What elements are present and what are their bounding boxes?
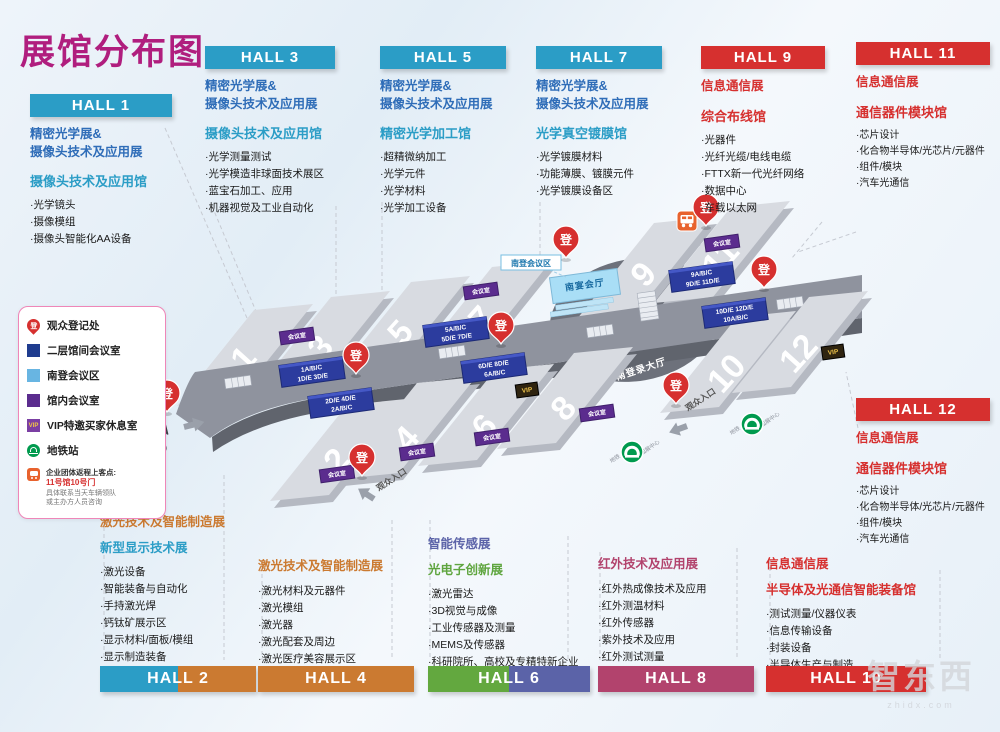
hall-number: 5 xyxy=(380,313,421,352)
hall5-shows: 精密光学展&摄像头技术及应用展 xyxy=(380,78,528,113)
exhibit-item: ·摄像头智能化AA设备 xyxy=(30,231,172,248)
exhibit-item: ·红外传感器 xyxy=(598,615,754,632)
vip-badge-icon: VIP xyxy=(27,419,40,432)
hall5-header: HALL 5 xyxy=(380,46,506,69)
svg-text:观众入口: 观众入口 xyxy=(683,386,717,413)
central-corridor xyxy=(176,275,862,452)
exhibit-item: ·光纤光缆/电线电缆 xyxy=(701,149,833,166)
svg-text:会议室: 会议室 xyxy=(713,238,732,248)
visitor-entrance-east: 观众入口 xyxy=(667,386,718,439)
svg-text:5A/B/C: 5A/B/C xyxy=(445,324,467,334)
hall3-shows: 精密光学展&摄像头技术及应用展 xyxy=(205,78,357,113)
exhibit-item: ·光学元件 xyxy=(380,166,528,183)
panel-hall7: HALL 7 精密光学展&摄像头技术及应用展 光学真空镀膜馆 ·光学镀膜材料 ·… xyxy=(536,46,684,200)
legend-label: 二层馆间会议室 xyxy=(47,343,121,358)
legend-label: 地铁站 xyxy=(47,443,79,458)
hall8-show: 红外技术及应用展 xyxy=(598,556,754,574)
unit-clusters: 1A/B/C1D/E 3D/E 2D/E 4D/E2A/B/C 5A/B/C5D… xyxy=(279,262,768,419)
hall11-items: ·芯片设计 ·化合物半导体/光芯片/元器件 ·组件/模块 ·汽车光通信 xyxy=(856,128,996,193)
svg-text:会议室: 会议室 xyxy=(288,331,307,341)
exhibit-item: ·激光材料及元器件 xyxy=(258,583,414,600)
exhibit-item: ·摄像模组 xyxy=(30,214,172,231)
hall8-header: HALL 8 xyxy=(598,666,754,692)
exhibit-item: ·FTTX新一代光纤网络 xyxy=(701,166,833,183)
exhibit-item: ·组件/模块 xyxy=(856,160,996,176)
exhibit-item: ·3D视觉与成像 xyxy=(428,603,590,620)
hall1-items: ·光学镜头 ·摄像模组 ·摄像头智能化AA设备 xyxy=(30,197,172,248)
hall10-show: 信息通信展 xyxy=(766,556,938,574)
hall11-venue: 通信器件模块馆 xyxy=(856,102,996,121)
hall10-header: HALL 10 xyxy=(766,666,926,692)
svg-text:会议室: 会议室 xyxy=(328,469,347,479)
exhibit-item: ·车载以太网 xyxy=(701,200,833,217)
svg-text:观众入口: 观众入口 xyxy=(374,466,408,493)
bus-note-line: 企业团体返程上客点: xyxy=(46,468,116,478)
panel-hall2: 激光技术及智能制造展 新型显示技术展 ·激光设备 ·智能装备与自动化 ·手持激光… xyxy=(100,514,256,692)
exhibit-item: ·芯片设计 xyxy=(856,128,996,144)
svg-text:会议室: 会议室 xyxy=(408,447,427,457)
panel-hall1: HALL 1 精密光学展&摄像头技术及应用展 摄像头技术及应用馆 ·光学镜头 ·… xyxy=(30,94,172,248)
exhibit-item: ·MEMS及传感器 xyxy=(428,637,590,654)
legend-item-hall-meeting: 馆内会议室 xyxy=(27,393,157,408)
legend-label: 南登会议区 xyxy=(47,368,100,383)
hall11-header: HALL 11 xyxy=(856,42,990,65)
hall1-header: HALL 1 xyxy=(30,94,172,117)
panel-hall6: 智能传感展 光电子创新展 ·激光雷达 ·3D视觉与成像 ·工业传感器及测量 ·M… xyxy=(428,536,590,692)
exhibit-item: ·机器视觉及工业自动化 xyxy=(205,200,357,217)
legend-item-south-meeting: 南登会议区 xyxy=(27,368,157,383)
hall-number: 4 xyxy=(386,419,427,459)
svg-text:登: 登 xyxy=(757,262,771,277)
exhibit-item: ·芯片设计 xyxy=(856,484,996,500)
svg-text:国展中心: 国展中心 xyxy=(639,437,662,456)
hall12-items: ·芯片设计 ·化合物半导体/光芯片/元器件 ·组件/模块 ·汽车光通信 xyxy=(856,484,996,549)
legend-bus-note: 企业团体返程上客点: 11号馆10号门 具体联系当天车辆领队 或主办方人员咨询 xyxy=(27,468,157,508)
registration-pins: 登 登 登 登 登 登 登 登 xyxy=(154,194,777,480)
exhibit-item: ·测试测量/仪器仪表 xyxy=(766,606,938,623)
exhibit-item: ·化合物半导体/光芯片/元器件 xyxy=(856,500,996,516)
lightblue-square-icon xyxy=(27,369,40,382)
svg-text:9D/E 11D/E: 9D/E 11D/E xyxy=(686,277,721,289)
hall3-venue: 摄像头技术及应用馆 xyxy=(205,123,357,142)
hall12-header: HALL 12 xyxy=(856,398,990,421)
exhibit-item: ·红外热成像技术及应用 xyxy=(598,581,754,598)
exhibit-item: ·激光配套及周边 xyxy=(258,634,414,651)
hall7-header: HALL 7 xyxy=(536,46,662,69)
panel-hall10: 信息通信展 半导体及光通信智能装备馆 ·测试测量/仪器仪表 ·信息传输设备 ·封… xyxy=(766,556,938,692)
exhibit-item: ·光学镀膜设备区 xyxy=(536,183,684,200)
hall1-venue: 摄像头技术及应用馆 xyxy=(30,171,172,190)
hall7-items: ·光学镀膜材料 ·功能薄膜、镀膜元件 ·光学镀膜设备区 xyxy=(536,149,684,200)
exhibit-item: ·钙钛矿展示区 xyxy=(100,615,256,632)
panel-hall3: HALL 3 精密光学展&摄像头技术及应用展 摄像头技术及应用馆 ·光学测量测试… xyxy=(205,46,357,217)
hall3-items: ·光学测量测试 ·光学模造非球面技术展区 ·蓝宝石加工、应用 ·机器视觉及工业自… xyxy=(205,149,357,217)
svg-text:10A/B/C: 10A/B/C xyxy=(723,314,749,324)
registration-hall-label: 南登录大厅 xyxy=(614,355,668,383)
hall4-items: ·激光材料及元器件 ·激光模组 ·激光器 ·激光配套及周边 ·激光医疗美容展示区 xyxy=(258,583,414,668)
exhibit-item: ·超精微纳加工 xyxy=(380,149,528,166)
svg-text:南登会议区: 南登会议区 xyxy=(511,258,551,268)
exhibit-item: ·蓝宝石加工、应用 xyxy=(205,183,357,200)
watermark-url: zhidx.com xyxy=(846,700,996,710)
exhibit-item: ·功能薄膜、镀膜元件 xyxy=(536,166,684,183)
svg-text:会议室: 会议室 xyxy=(588,408,607,418)
hall-number: 2 xyxy=(316,441,357,480)
hall-number: 1 xyxy=(223,339,264,378)
legend-item-metro: 地铁站 xyxy=(27,443,157,458)
bus-note-line: 或主办方人员咨询 xyxy=(46,498,116,507)
vip-rooms: VIP VIP xyxy=(515,344,845,398)
banquet-hall: 南宴会厅 xyxy=(546,268,623,317)
svg-text:10D/E 12D/E: 10D/E 12D/E xyxy=(715,304,754,316)
meeting-rooms: 会议室 会议室 会议室 会议室 会议室 会议室 会议室 xyxy=(279,234,739,483)
bus-badge-icon xyxy=(27,468,40,481)
exhibit-item: ·激光器 xyxy=(258,617,414,634)
svg-text:地铁: 地铁 xyxy=(608,452,622,465)
hall2-show2: 新型显示技术展 xyxy=(100,540,256,558)
exhibit-item: ·红外测试测量 xyxy=(598,649,754,666)
hall12-show: 信息通信展 xyxy=(856,430,996,448)
hall9-items: ·光器件 ·光纤光缆/电线电缆 ·FTTX新一代光纤网络 ·数据中心 ·车载以太… xyxy=(701,132,833,217)
hall-number: 7 xyxy=(461,299,502,338)
exhibit-item: ·光学模造非球面技术展区 xyxy=(205,166,357,183)
exhibit-item: ·信息传输设备 xyxy=(766,623,938,640)
hall6-header: HALL 6 xyxy=(428,666,590,692)
exhibit-item: ·激光模组 xyxy=(258,600,414,617)
hall-number: 6 xyxy=(464,407,505,446)
exhibit-item: ·激光医疗美容展示区 xyxy=(258,651,414,668)
panel-hall8: 红外技术及应用展 ·红外热成像技术及应用 ·红外测温材料 ·红外传感器 ·紫外技… xyxy=(598,556,754,692)
svg-text:6A/B/C: 6A/B/C xyxy=(484,369,506,379)
legend-label: 观众登记处 xyxy=(47,318,100,333)
exhibit-item: ·化合物半导体/光芯片/元器件 xyxy=(856,144,996,160)
panel-hall4: 激光技术及智能制造展 ·激光材料及元器件 ·激光模组 ·激光器 ·激光配套及周边… xyxy=(258,558,414,692)
svg-text:登: 登 xyxy=(669,378,683,393)
escalators xyxy=(224,291,803,389)
svg-text:2A/B/C: 2A/B/C xyxy=(331,404,353,414)
registration-pin-icon: 登 xyxy=(24,316,42,334)
hall4-header: HALL 4 xyxy=(258,666,414,692)
purple-square-icon xyxy=(27,394,40,407)
svg-text:9A/B/C: 9A/B/C xyxy=(691,269,713,279)
hall5-venue: 精密光学加工馆 xyxy=(380,123,528,142)
metro-stations: 地铁国展中心 地铁国展中心 xyxy=(608,409,782,464)
exhibit-item: ·数据中心 xyxy=(701,183,833,200)
exhibit-item: ·光学加工设备 xyxy=(380,200,528,217)
svg-text:1A/B/C: 1A/B/C xyxy=(301,364,323,374)
exhibit-item: ·光学镀膜材料 xyxy=(536,149,684,166)
map-legend: 登 观众登记处 二层馆间会议室 南登会议区 馆内会议室 VIP VIP特邀买家休… xyxy=(18,306,166,519)
exhibit-item: ·光器件 xyxy=(701,132,833,149)
hall-number: 12 xyxy=(772,327,826,381)
svg-text:1D/E 3D/E: 1D/E 3D/E xyxy=(297,372,329,383)
hall6-show1: 智能传感展 xyxy=(428,536,590,554)
hall9-show: 信息通信展 xyxy=(701,78,833,96)
hall7-venue: 光学真空镀膜馆 xyxy=(536,123,684,142)
svg-text:登: 登 xyxy=(355,450,369,465)
svg-text:会议室: 会议室 xyxy=(483,432,502,442)
svg-text:6D/E 8D/E: 6D/E 8D/E xyxy=(478,359,510,370)
svg-text:国展中心: 国展中心 xyxy=(759,409,782,428)
panel-hall9: HALL 9 信息通信展 综合布线馆 ·光器件 ·光纤光缆/电线电缆 ·FTTX… xyxy=(701,46,833,217)
exhibit-item: ·封装设备 xyxy=(766,640,938,657)
hall8-items: ·红外热成像技术及应用 ·红外测温材料 ·红外传感器 ·紫外技术及应用 ·红外测… xyxy=(598,581,754,666)
hall6-show2: 光电子创新展 xyxy=(428,562,590,580)
hall-slabs-back: 1 3 5 7 9 11 xyxy=(177,201,794,413)
hall1-shows: 精密光学展&摄像头技术及应用展 xyxy=(30,126,172,161)
bus-icon xyxy=(677,211,697,231)
panel-hall5: HALL 5 精密光学展&摄像头技术及应用展 精密光学加工馆 ·超精微纳加工 ·… xyxy=(380,46,528,217)
legend-item-floor2-meeting: 二层馆间会议室 xyxy=(27,343,157,358)
exhibit-item: ·光学镜头 xyxy=(30,197,172,214)
hall-number: 8 xyxy=(543,389,584,428)
exhibit-item: ·工业传感器及测量 xyxy=(428,620,590,637)
hall-number: 11 xyxy=(695,233,747,285)
svg-text:登: 登 xyxy=(559,232,573,247)
exhibit-item: ·汽车光通信 xyxy=(856,176,996,192)
hall9-venue: 综合布线馆 xyxy=(701,106,833,125)
navy-square-icon xyxy=(27,344,40,357)
legend-label: VIP特邀买家休息室 xyxy=(47,418,137,433)
hall6-items: ·激光雷达 ·3D视觉与成像 ·工业传感器及测量 ·MEMS及传感器 ·科研院所… xyxy=(428,586,590,671)
exhibit-item: ·光学测量测试 xyxy=(205,149,357,166)
panel-hall12: HALL 12 信息通信展 通信器件模块馆 ·芯片设计 ·化合物半导体/光芯片/… xyxy=(856,398,996,548)
hall3-header: HALL 3 xyxy=(205,46,335,69)
svg-text:地铁: 地铁 xyxy=(728,424,742,437)
hall11-show: 信息通信展 xyxy=(856,74,996,92)
hall9-header: HALL 9 xyxy=(701,46,825,69)
exhibit-item: ·组件/模块 xyxy=(856,516,996,532)
svg-text:登: 登 xyxy=(494,318,508,333)
hall5-items: ·超精微纳加工 ·光学元件 ·光学材料 ·光学加工设备 xyxy=(380,149,528,217)
exhibit-item: ·红外测温材料 xyxy=(598,598,754,615)
hall-number: 10 xyxy=(700,347,754,401)
exhibit-item: ·汽车光通信 xyxy=(856,532,996,548)
exhibit-item: ·紫外技术及应用 xyxy=(598,632,754,649)
hall10-venue: 半导体及光通信智能装备馆 xyxy=(766,582,938,600)
exhibit-item: ·显示制造装备 xyxy=(100,649,256,666)
page-title: 展馆分布图 xyxy=(20,24,205,75)
visitor-entrance-south: 观众入口 xyxy=(354,466,408,505)
svg-text:会议室: 会议室 xyxy=(472,286,491,296)
hall7-shows: 精密光学展&摄像头技术及应用展 xyxy=(536,78,684,113)
exhibit-item: ·智能装备与自动化 xyxy=(100,581,256,598)
registration-plaza xyxy=(540,245,731,395)
south-meeting-area: 南登会议区 xyxy=(501,255,566,277)
hall4-show: 激光技术及智能制造展 xyxy=(258,558,414,576)
svg-text:VIP: VIP xyxy=(827,348,839,356)
exhibit-item: ·显示材料/面板/模组 xyxy=(100,632,256,649)
bus-note-gate: 11号馆10号门 xyxy=(46,478,116,489)
legend-label: 馆内会议室 xyxy=(47,393,100,408)
exhibit-item: ·手持激光焊 xyxy=(100,598,256,615)
hall-slabs-front: 2 4 6 8 10 12 xyxy=(270,291,872,508)
svg-text:登: 登 xyxy=(349,348,363,363)
legend-item-registration: 登 观众登记处 xyxy=(27,318,157,333)
svg-text:5D/E 7D/E: 5D/E 7D/E xyxy=(441,332,473,343)
hall2-header: HALL 2 xyxy=(100,666,256,692)
exhibit-item: ·光学材料 xyxy=(380,183,528,200)
svg-text:2D/E 4D/E: 2D/E 4D/E xyxy=(325,394,357,405)
exhibit-item: ·激光设备 xyxy=(100,564,256,581)
legend-item-vip: VIP VIP特邀买家休息室 xyxy=(27,418,157,433)
hall10-items: ·测试测量/仪器仪表 ·信息传输设备 ·封装设备 ·半导体生产与制造 xyxy=(766,606,938,674)
bus-note-line: 具体联系当天车辆领队 xyxy=(46,489,116,498)
exhibit-item: ·激光雷达 xyxy=(428,586,590,603)
banquet-hall-label: 南宴会厅 xyxy=(564,276,605,292)
svg-text:VIP: VIP xyxy=(521,386,533,394)
hall-number: 9 xyxy=(623,255,664,294)
hall12-venue: 通信器件模块馆 xyxy=(856,458,996,477)
hall-number: 3 xyxy=(300,328,341,367)
metro-badge-icon xyxy=(27,444,40,457)
panel-hall11: HALL 11 信息通信展 通信器件模块馆 ·芯片设计 ·化合物半导体/光芯片/… xyxy=(856,42,996,192)
